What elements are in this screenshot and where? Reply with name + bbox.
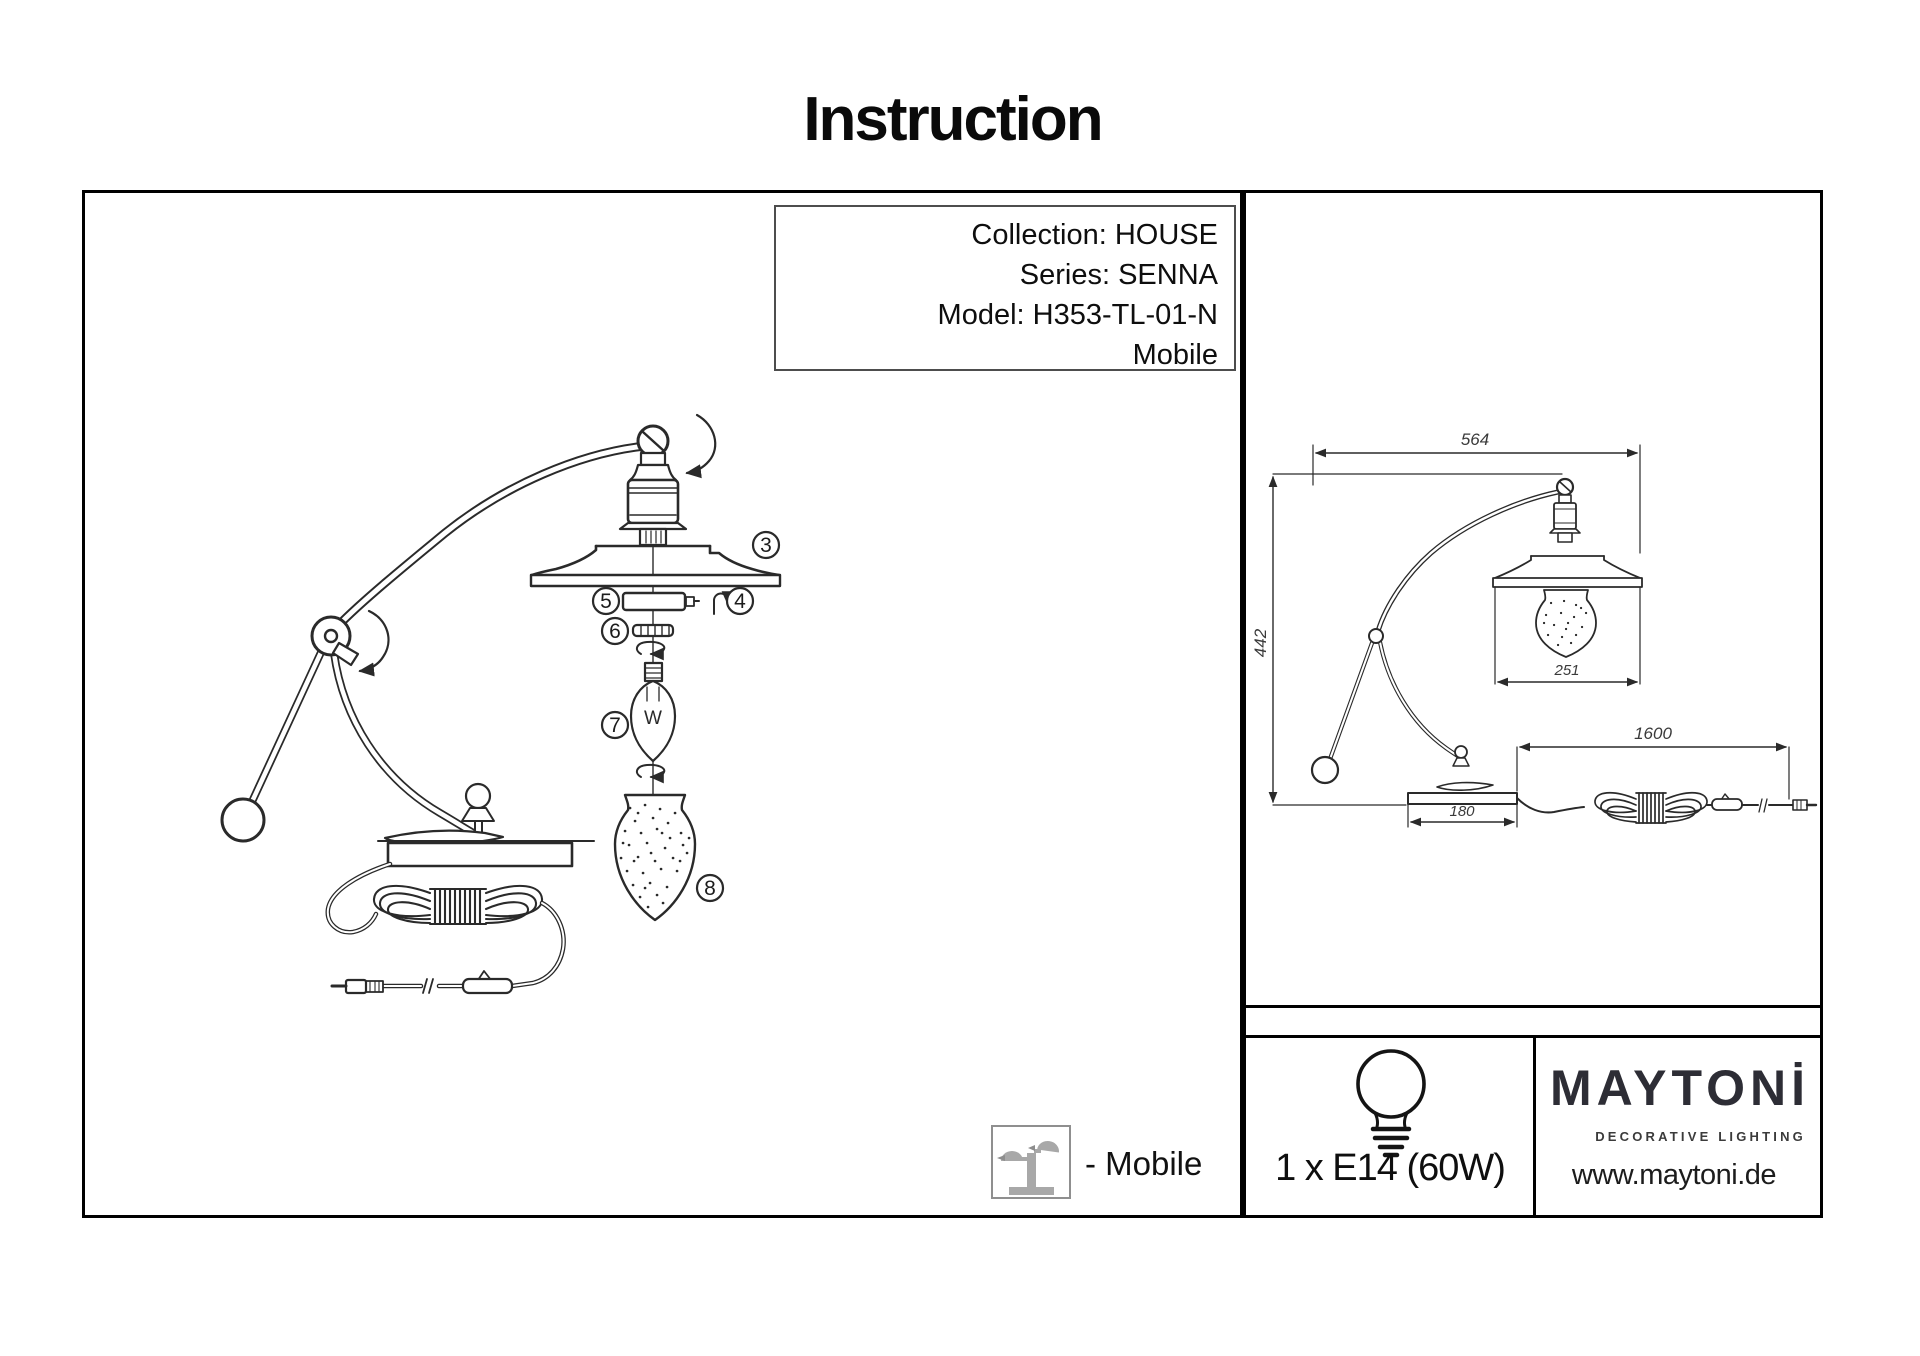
lamp-arm [250, 446, 645, 834]
pivot-rotation-arrow [360, 611, 388, 671]
dim-width: 564 [1313, 430, 1640, 553]
counterweight-ball [222, 799, 264, 841]
mini-lamp [1312, 479, 1816, 823]
svg-text:5: 5 [600, 590, 612, 613]
instruction-sheet: { "page": { "title": "Instruction" }, "c… [0, 0, 1920, 1356]
svg-text:6: 6 [609, 620, 621, 643]
inline-switch [463, 971, 512, 993]
mobile-legend-label: - Mobile [1085, 1145, 1202, 1183]
mobile-legend-box [991, 1125, 1071, 1199]
glass-diffuser [615, 795, 695, 920]
shade [531, 546, 780, 586]
dim-cord: 1600 [1517, 724, 1789, 799]
svg-text:564: 564 [1461, 430, 1489, 449]
exploded-diagram: W [85, 193, 1246, 1221]
svg-text:442: 442 [1251, 628, 1270, 657]
svg-text:7: 7 [609, 714, 621, 737]
dim-base: 180 [1408, 803, 1517, 827]
svg-text:4: 4 [734, 590, 746, 613]
svg-text:1600: 1600 [1634, 724, 1672, 743]
brand-website: www.maytoni.de [1538, 1159, 1810, 1192]
brand-tagline: DECORATIVE LIGHTING [1595, 1129, 1806, 1144]
brand-logo: MAYTONİ [1538, 1059, 1810, 1117]
dimensions-panel: 564 442 [1243, 190, 1823, 1218]
bulb-filament-mark: W [644, 708, 662, 729]
svg-text:251: 251 [1553, 662, 1579, 679]
bulb-rotation-arrow [637, 765, 664, 777]
top-rotation-arrow [687, 415, 715, 473]
top-joint [638, 426, 668, 456]
bulb-icon [1323, 1047, 1459, 1159]
mobile-lamp-icon [993, 1127, 1069, 1197]
svg-text:180: 180 [1449, 803, 1475, 820]
power-plug [332, 980, 383, 993]
page-title: Instruction [82, 84, 1823, 155]
dimension-drawing: 564 442 [1246, 193, 1820, 1005]
exploded-view-panel: Collection: HOUSE Series: SENNA Model: H… [82, 190, 1243, 1218]
ring-rotation-arrow [637, 642, 664, 654]
knurled-ring [633, 625, 673, 636]
divider-line-1 [1246, 1005, 1820, 1008]
dim-height: 442 [1251, 474, 1562, 805]
svg-text:3: 3 [760, 534, 772, 557]
socket-assembly [620, 453, 686, 545]
power-cord [328, 864, 564, 993]
lamp-spec-label: 1 x E14 (60W) [1246, 1147, 1534, 1190]
screw-hook-arrow [714, 593, 728, 614]
socket-insert [623, 593, 699, 610]
svg-text:8: 8 [704, 877, 716, 900]
base-slab [378, 841, 594, 866]
